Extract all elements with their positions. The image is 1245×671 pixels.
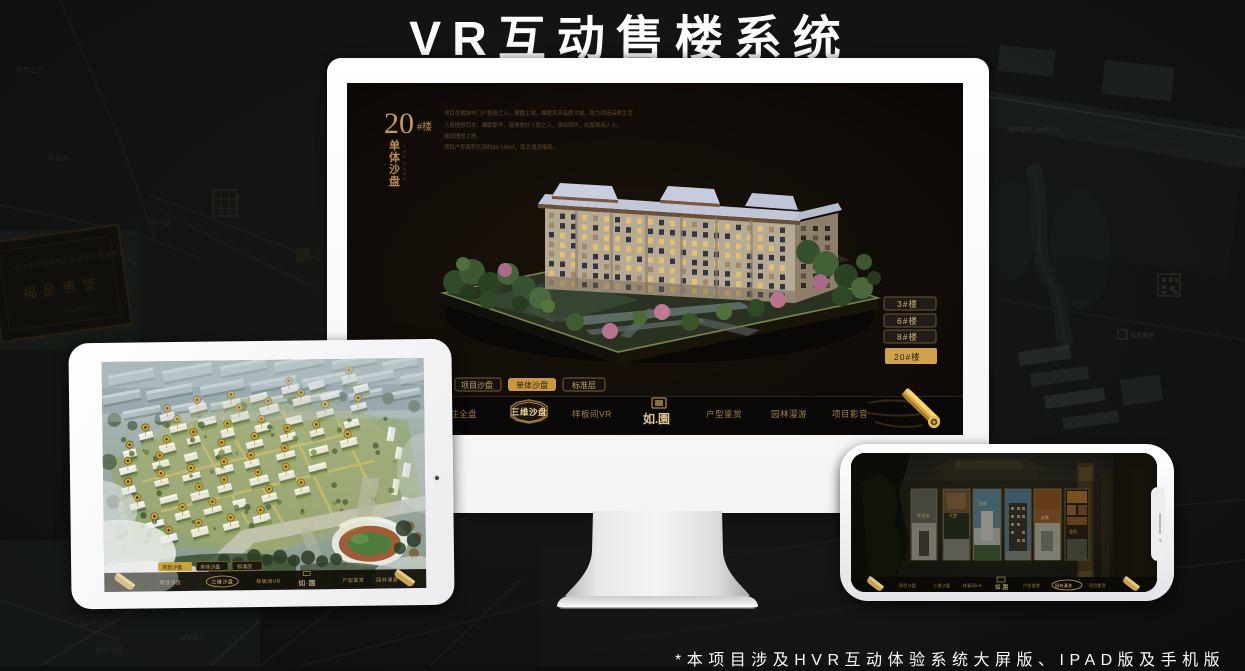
svg-text:成就理想之居。: 成就理想之居。 bbox=[444, 132, 482, 140]
svg-text:8#楼: 8#楼 bbox=[897, 332, 918, 342]
svg-text:单体沙盘: 单体沙盘 bbox=[516, 380, 548, 390]
svg-text:20: 20 bbox=[384, 107, 414, 140]
svg-text:3#楼: 3#楼 bbox=[897, 299, 918, 309]
svg-text:盘: 盘 bbox=[389, 174, 400, 188]
svg-text:标准层: 标准层 bbox=[237, 563, 252, 570]
svg-text:沙: 沙 bbox=[389, 163, 400, 176]
svg-text:三维沙盘: 三维沙盘 bbox=[211, 578, 233, 585]
svg-text:项目影音: 项目影音 bbox=[1089, 582, 1106, 588]
svg-text:体: 体 bbox=[389, 150, 401, 164]
svg-text:项目沙盘: 项目沙盘 bbox=[461, 380, 493, 390]
svg-text:项目户型面积区间约89-143㎡，南北通透格局。: 项目户型面积区间约89-143㎡，南北通透格局。 bbox=[444, 143, 558, 151]
svg-text:如·園: 如·園 bbox=[298, 578, 316, 587]
svg-text:地铁3号线: 地铁3号线 bbox=[95, 646, 122, 654]
svg-text:E: E bbox=[403, 154, 406, 159]
svg-text:项目坐拥城市门户枢纽之上，傲踞主城，雄踞滨河品质大城，致力缔: 项目坐拥城市门户枢纽之上，傲踞主城，雄踞滨河品质大城，致力缔造品质生活 bbox=[444, 109, 633, 117]
svg-text:福星路: 福星路 bbox=[48, 153, 69, 162]
svg-text:园林漫游: 园林漫游 bbox=[771, 409, 807, 419]
svg-text:户型鉴赏: 户型鉴赏 bbox=[706, 409, 742, 419]
svg-text:样板间VR: 样板间VR bbox=[963, 582, 982, 588]
svg-text:20#楼: 20#楼 bbox=[894, 352, 921, 362]
svg-text:312路 公交站: 312路 公交站 bbox=[80, 619, 116, 627]
svg-text:户型鉴赏: 户型鉴赏 bbox=[342, 577, 364, 584]
svg-text:样板间VR: 样板间VR bbox=[572, 409, 612, 419]
svg-text:住全盘: 住全盘 bbox=[450, 409, 477, 419]
svg-text:项目沙盘: 项目沙盘 bbox=[899, 582, 916, 588]
svg-text:6#楼: 6#楼 bbox=[897, 316, 918, 326]
svg-text:人居理想范本，臻献繁华，绽放美好人居之上，演绎风华，礼献菁英: 人居理想范本，臻献繁华，绽放美好人居之上，演绎风华，礼献菁英人士， bbox=[444, 121, 622, 129]
svg-text:园林漫游: 园林漫游 bbox=[376, 576, 398, 583]
svg-text:三维沙盘: 三维沙盘 bbox=[933, 582, 950, 588]
svg-text:中环路: 中环路 bbox=[150, 218, 171, 227]
svg-text:D: D bbox=[403, 176, 406, 181]
svg-text:城市展厅 · 体验中心: 城市展厅 · 体验中心 bbox=[1008, 126, 1061, 134]
svg-text:项目影音: 项目影音 bbox=[832, 409, 868, 419]
svg-text:福星惠誉: 福星惠誉 bbox=[1130, 332, 1154, 340]
svg-text:#楼: #楼 bbox=[417, 120, 432, 133]
svg-text:园林漫游: 园林漫游 bbox=[1055, 582, 1072, 588]
svg-text:单: 单 bbox=[389, 138, 400, 152]
svg-text:如.園: 如.園 bbox=[643, 411, 670, 426]
svg-text:样板间VR: 样板间VR bbox=[256, 578, 281, 585]
svg-text:三维沙盘: 三维沙盘 bbox=[511, 407, 547, 417]
svg-text:如.園: 如.園 bbox=[995, 583, 1008, 591]
svg-text:单体沙盘: 单体沙盘 bbox=[200, 564, 220, 571]
svg-text:项目沙盘: 项目沙盘 bbox=[162, 564, 182, 571]
svg-text:户型鉴赏: 户型鉴赏 bbox=[1023, 582, 1040, 588]
svg-text:标准层: 标准层 bbox=[572, 380, 596, 390]
svg-text:城市展厅: 城市展厅 bbox=[180, 634, 204, 642]
